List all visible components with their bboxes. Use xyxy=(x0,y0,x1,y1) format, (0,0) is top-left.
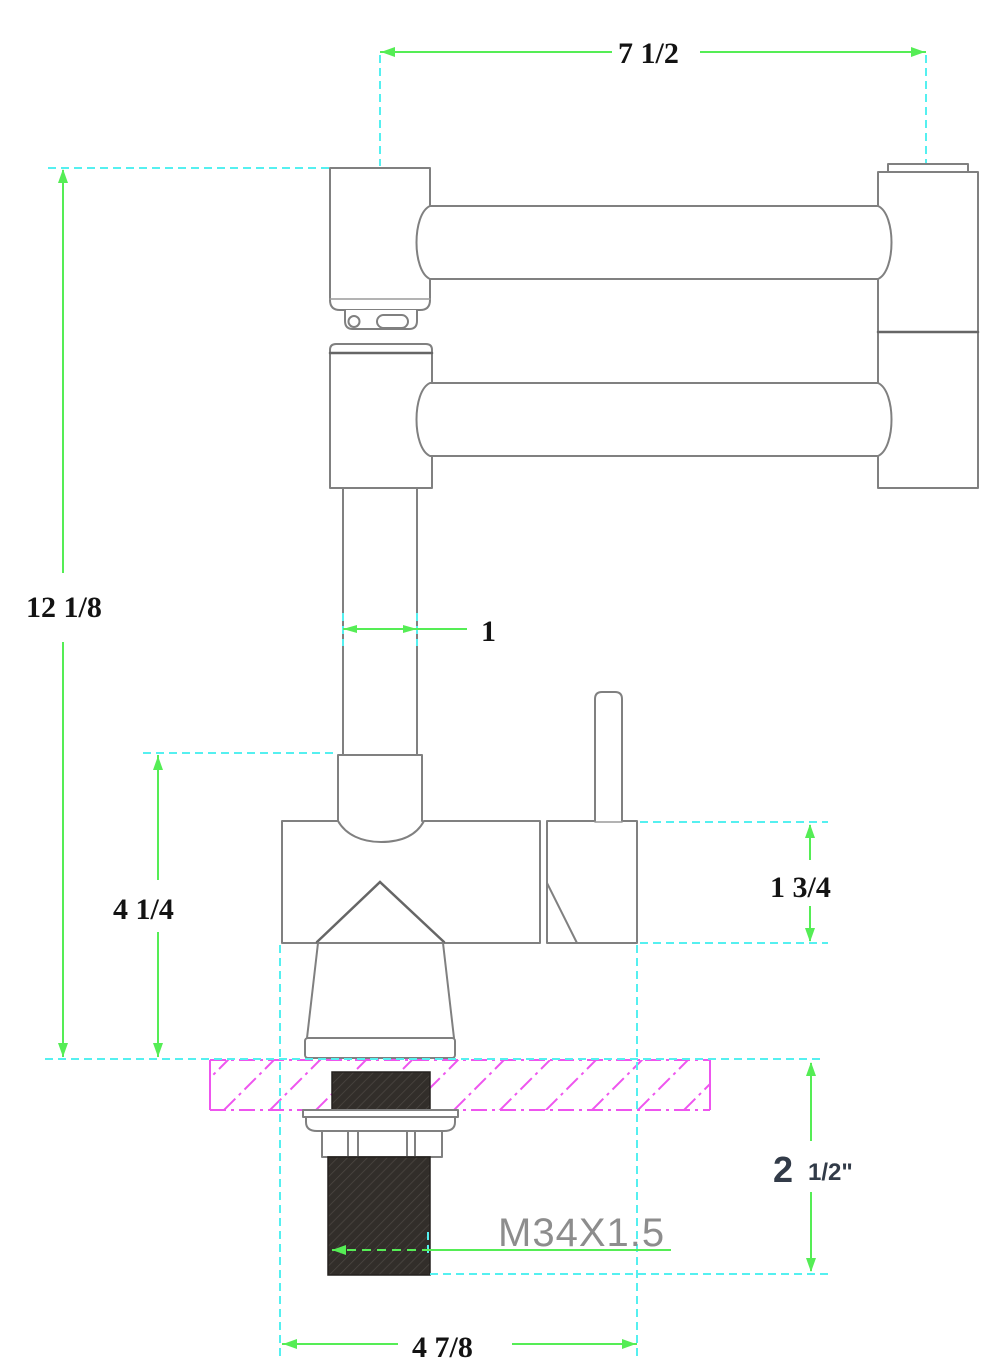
mount-collar xyxy=(338,755,422,821)
label-arm-reach: 7 1/2 xyxy=(618,37,679,70)
technical-drawing: 7 1/2 12 1/8 1 4 1/4 1 3/4 2 1/2" M34X1.… xyxy=(0,0,1000,1365)
label-overall-height: 12 1/8 xyxy=(26,591,102,624)
label-body-drop: 4 1/4 xyxy=(113,893,174,926)
upper-arm xyxy=(417,206,892,279)
valve-body xyxy=(282,821,540,943)
handle-lever xyxy=(595,692,622,822)
label-base-span: 4 7/8 xyxy=(412,1331,473,1364)
dimension-pipe-width xyxy=(343,625,467,633)
handle-housing xyxy=(547,821,637,943)
label-thread-spec: M34X1.5 xyxy=(498,1211,665,1255)
right-column xyxy=(878,172,978,488)
swing-spout-upper-block xyxy=(330,168,430,310)
washer-plate xyxy=(303,1110,458,1117)
label-deck-max-frac: 1/2" xyxy=(808,1159,853,1186)
countertop-section xyxy=(210,1060,710,1110)
label-valve-height: 1 3/4 xyxy=(770,871,831,904)
hex-locknut xyxy=(322,1131,442,1157)
label-pipe-width: 1 xyxy=(481,615,496,648)
threaded-shank xyxy=(328,1157,430,1275)
lower-arm xyxy=(417,383,892,456)
base-cone-right xyxy=(443,943,454,1038)
countertop-hatch xyxy=(210,1060,710,1110)
base-cone-left xyxy=(307,943,318,1038)
locknut-flange xyxy=(306,1117,455,1131)
label-deck-max-whole: 2 xyxy=(773,1149,793,1190)
base-flange xyxy=(305,1038,455,1058)
mounting-spacer xyxy=(332,1072,430,1110)
drawing-page: 7 1/2 12 1/8 1 4 1/4 1 3/4 2 1/2" M34X1.… xyxy=(0,0,1000,1365)
